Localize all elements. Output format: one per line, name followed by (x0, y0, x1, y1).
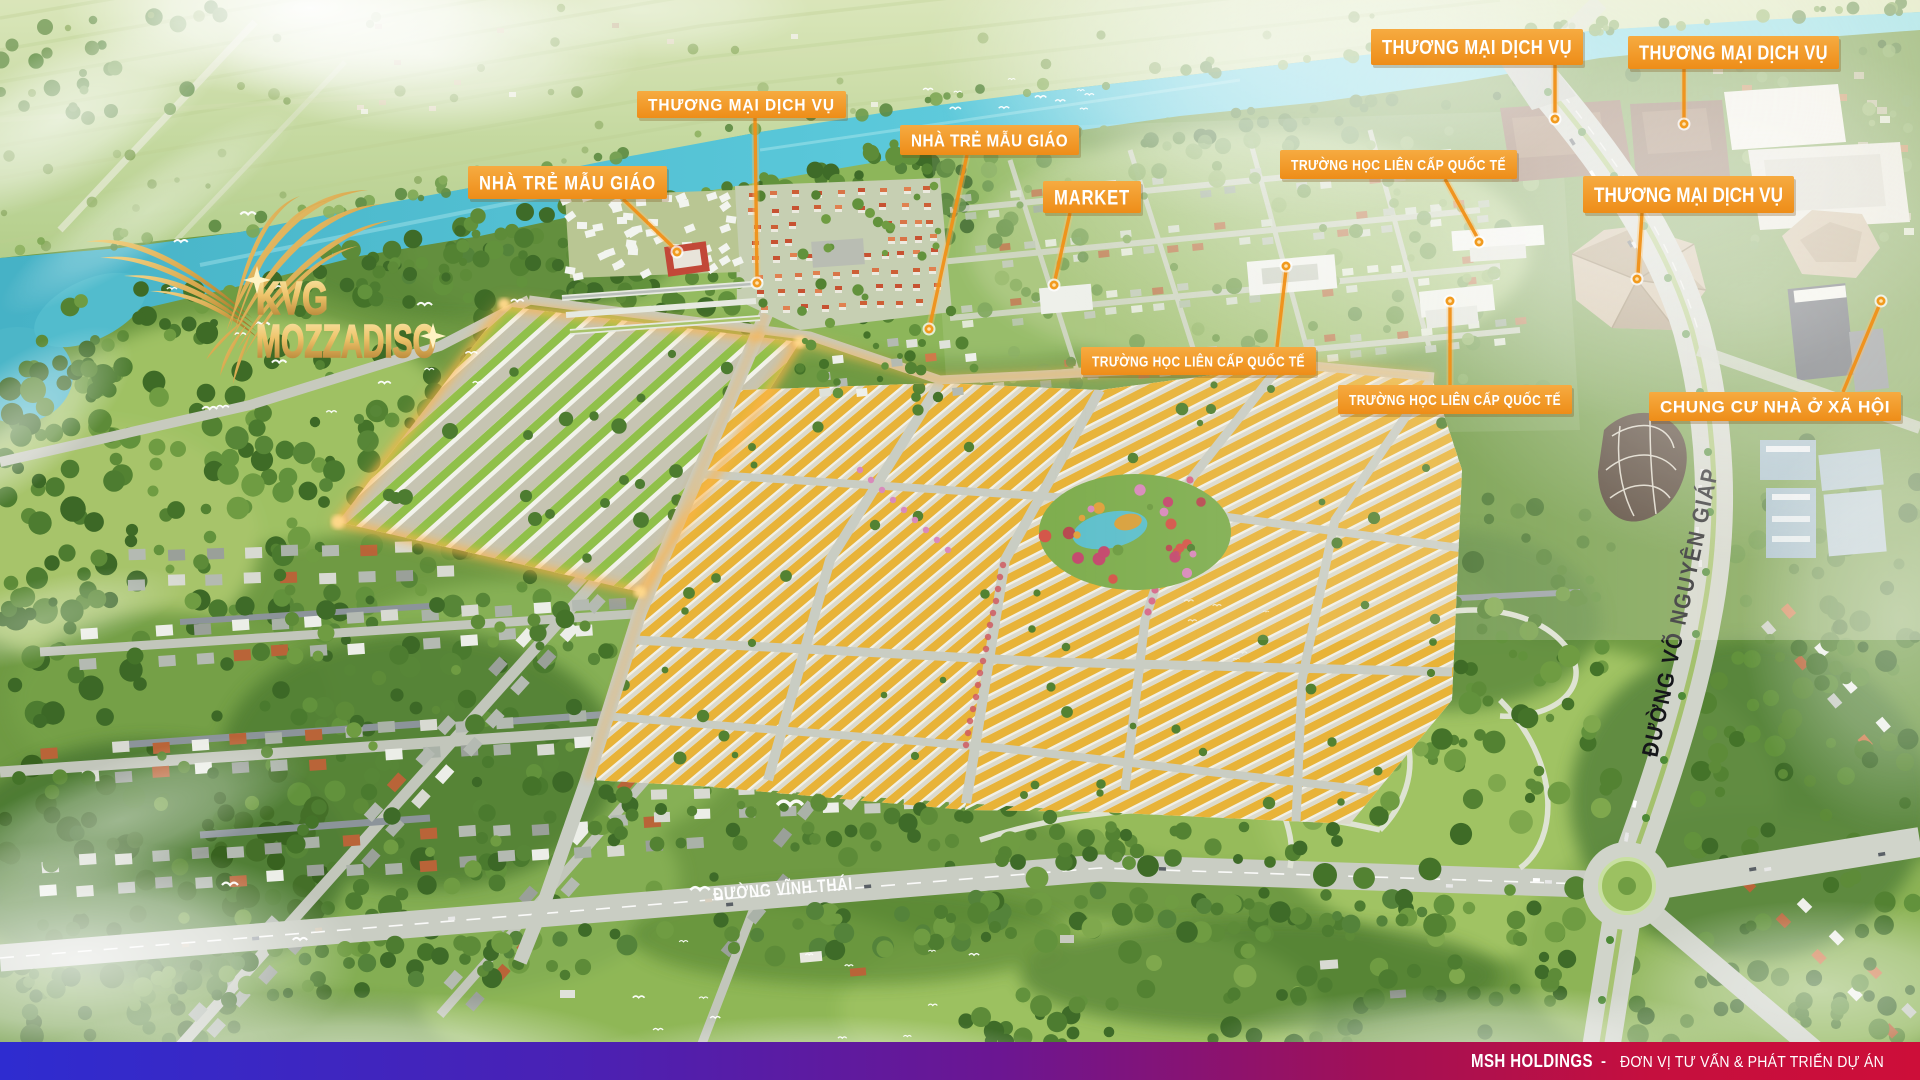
svg-text:NHÀ TRẺ MẪU GIÁO: NHÀ TRẺ MẪU GIÁO (911, 129, 1068, 150)
svg-text:NHÀ TRẺ MẪU GIÁO: NHÀ TRẺ MẪU GIÁO (479, 172, 656, 194)
svg-text:-: - (1601, 1053, 1606, 1070)
svg-text:TRƯỜNG HỌC LIÊN CẤP QUỐC TẾ: TRƯỜNG HỌC LIÊN CẤP QUỐC TẾ (1291, 156, 1506, 174)
svg-text:THƯƠNG MẠI DỊCH VỤ: THƯƠNG MẠI DỊCH VỤ (648, 96, 835, 114)
svg-text:TRƯỜNG HỌC LIÊN CẤP QUỐC TẾ: TRƯỜNG HỌC LIÊN CẤP QUỐC TẾ (1092, 352, 1305, 370)
svg-text:THƯƠNG MẠI DỊCH VỤ: THƯƠNG MẠI DỊCH VỤ (1594, 184, 1783, 207)
svg-text:CHUNG CƯ NHÀ Ở XÃ HỘI: CHUNG CƯ NHÀ Ở XÃ HỘI (1660, 396, 1890, 416)
svg-text:MSH HOLDINGS: MSH HOLDINGS (1471, 1051, 1593, 1071)
svg-text:ĐƠN VỊ TƯ VẤN & PHÁT TRIỂN DỰ: ĐƠN VỊ TƯ VẤN & PHÁT TRIỂN DỰ ÁN (1620, 1052, 1884, 1071)
svg-text:THƯƠNG MẠI DỊCH VỤ: THƯƠNG MẠI DỊCH VỤ (1382, 37, 1572, 59)
svg-text:TRƯỜNG HỌC LIÊN CẤP QUỐC TẾ: TRƯỜNG HỌC LIÊN CẤP QUỐC TẾ (1349, 391, 1561, 409)
svg-text:MARKET: MARKET (1054, 187, 1130, 210)
svg-text:THƯƠNG MẠI DỊCH VỤ: THƯƠNG MẠI DỊCH VỤ (1639, 43, 1828, 65)
svg-text:MOZZADISO: MOZZADISO (256, 315, 436, 367)
